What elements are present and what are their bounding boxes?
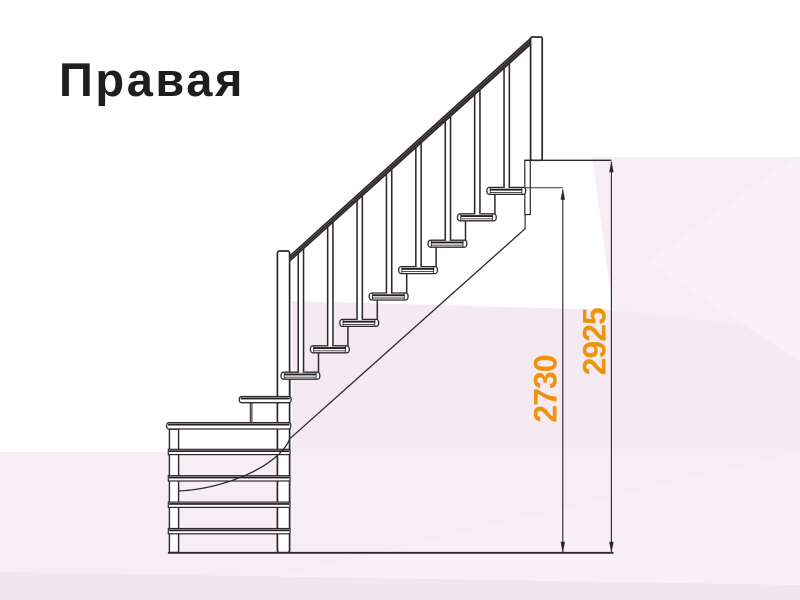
svg-text:2730: 2730 [527,355,563,422]
svg-text:2925: 2925 [576,308,612,375]
